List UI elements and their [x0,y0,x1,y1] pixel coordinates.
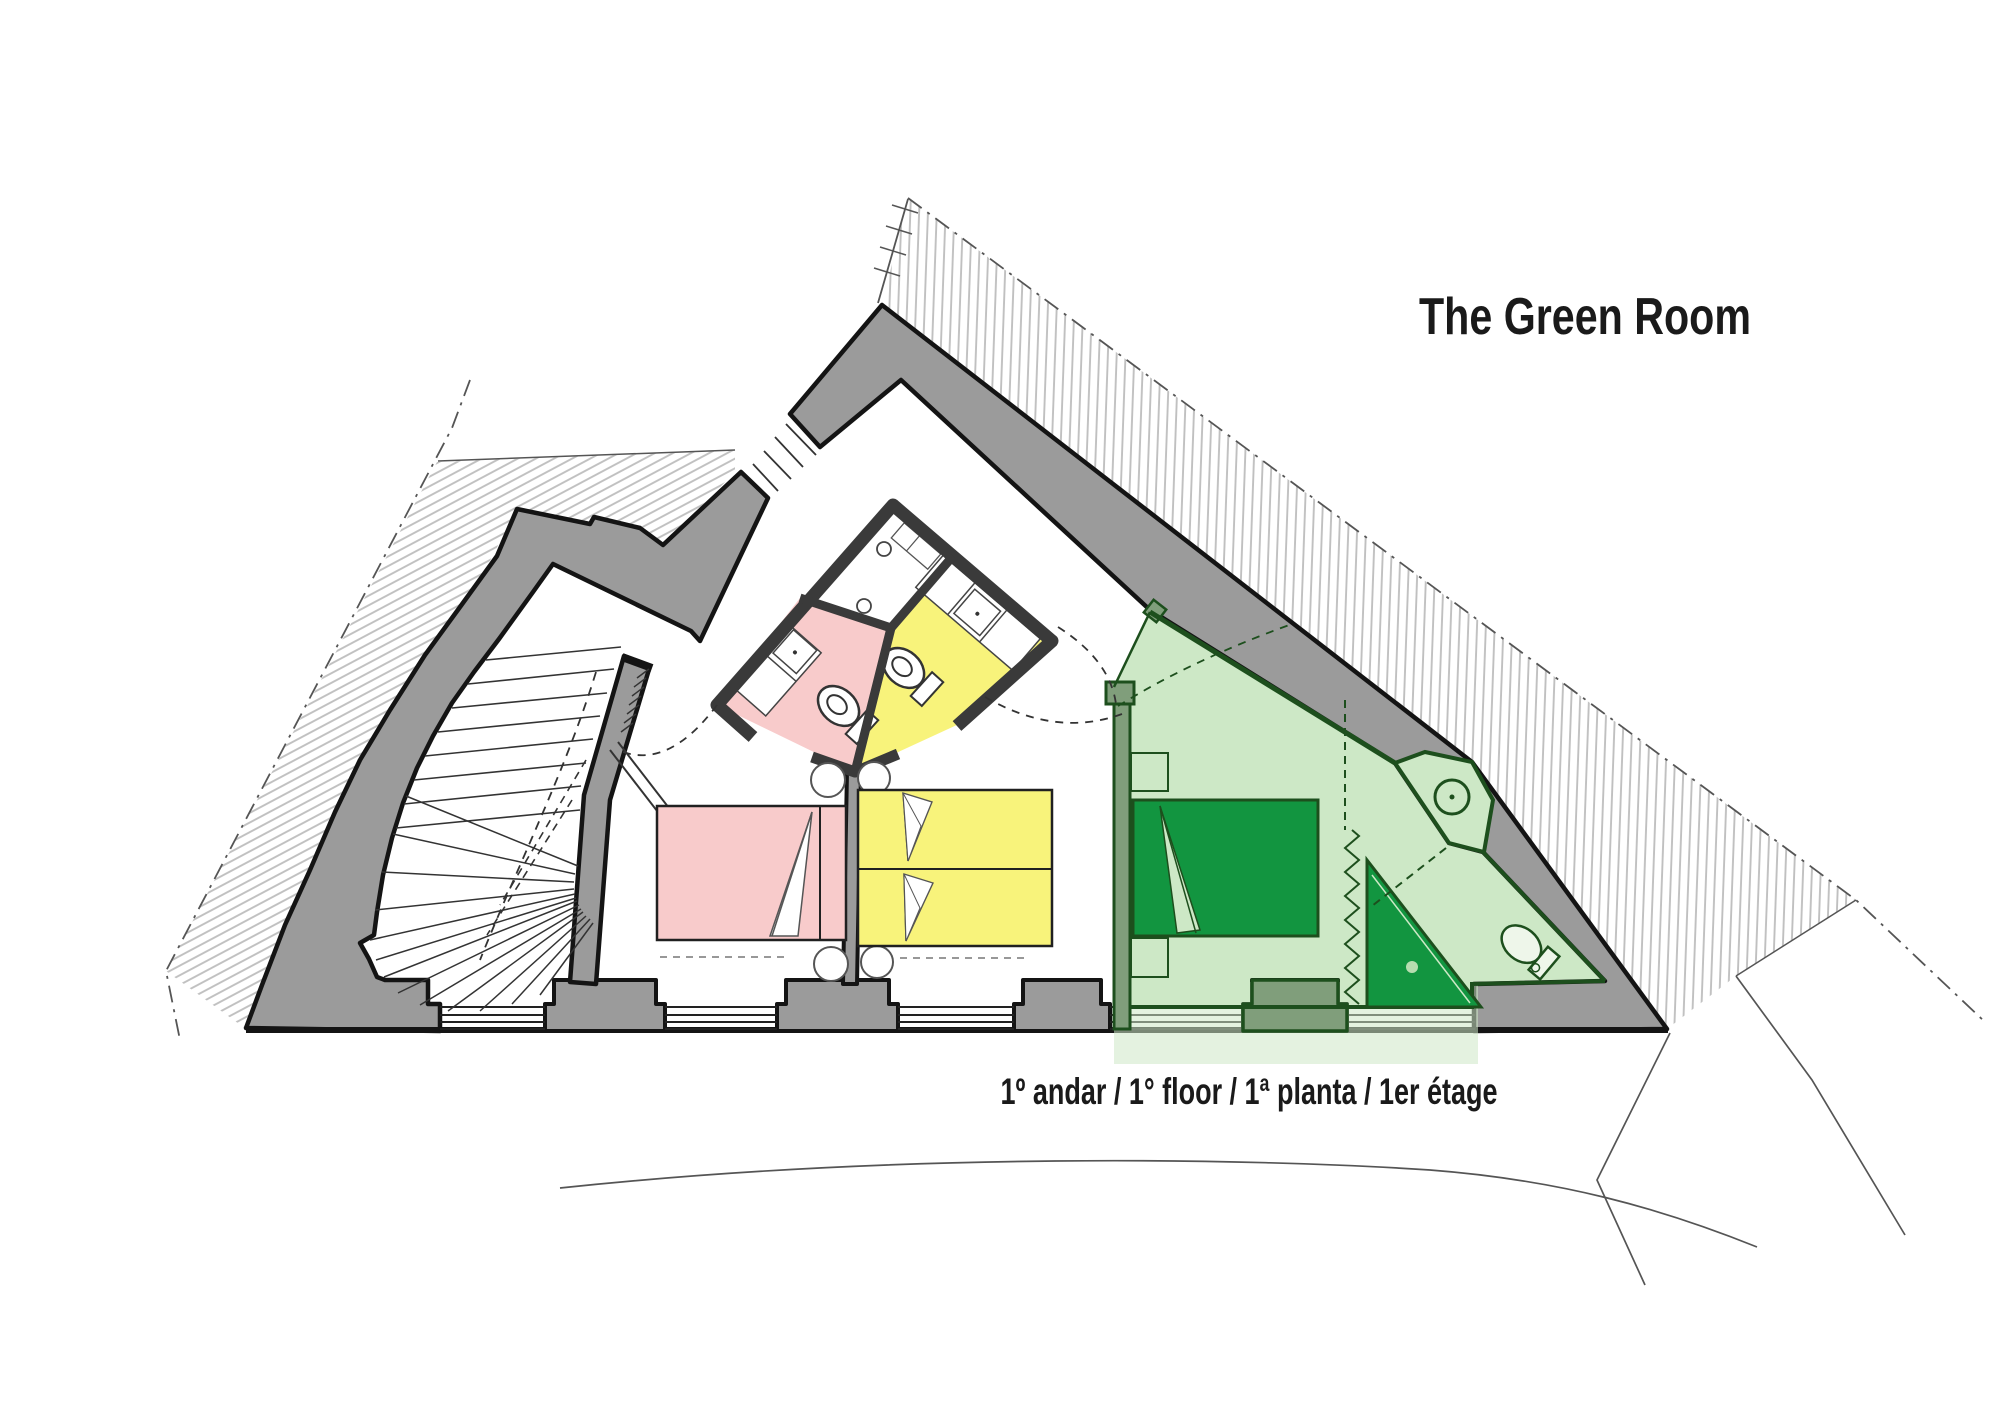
svg-text:The Green Room: The Green Room [1419,288,1751,346]
svg-text:1º andar / 1° floor / 1ª plan: 1º andar / 1° floor / 1ª planta / 1er ét… [1001,1071,1498,1112]
